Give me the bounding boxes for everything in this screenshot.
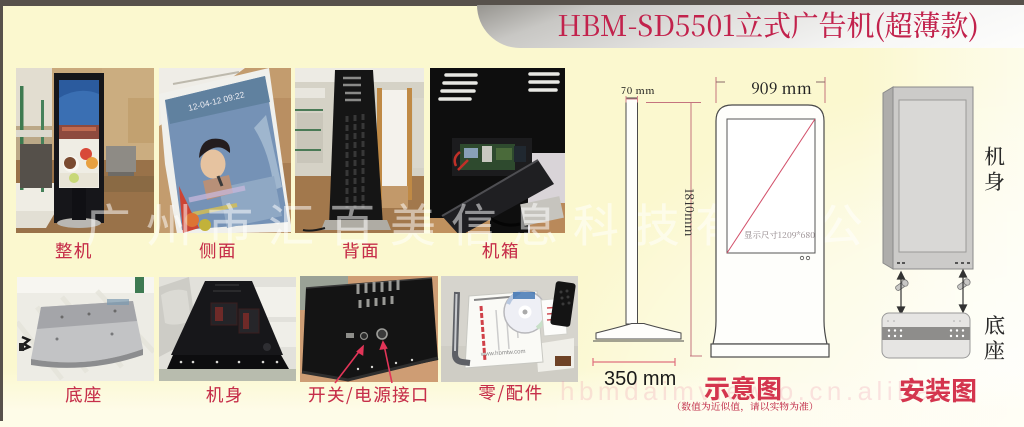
svg-text:70 mm: 70 mm <box>621 83 655 97</box>
svg-text:显示尺寸1209*680: 显示尺寸1209*680 <box>744 229 815 241</box>
svg-text:350 mm: 350 mm <box>604 368 676 390</box>
svg-text:909 mm: 909 mm <box>751 77 812 99</box>
svg-text:1810mm: 1810mm <box>681 188 698 237</box>
